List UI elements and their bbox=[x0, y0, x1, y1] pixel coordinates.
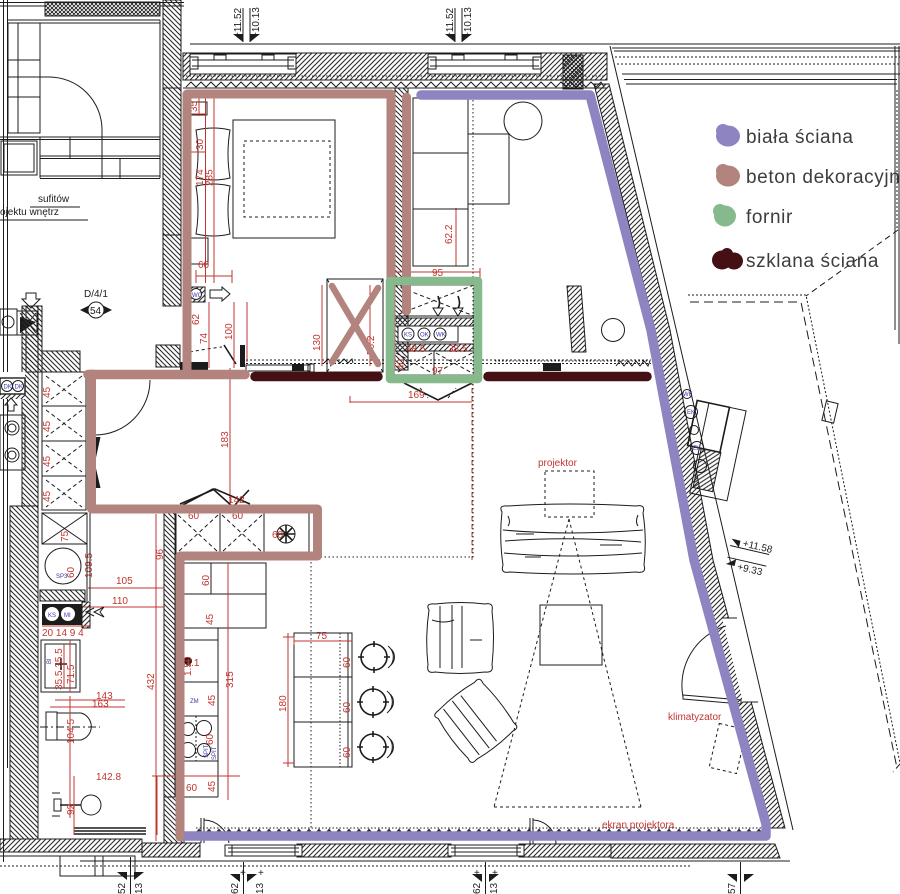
svg-text:WK: WK bbox=[683, 392, 693, 398]
svg-text:+: + bbox=[474, 868, 480, 879]
svg-text:62.2: 62.2 bbox=[444, 224, 455, 244]
svg-text:+: + bbox=[492, 868, 498, 879]
svg-text:+11.52: +11.52 bbox=[445, 7, 456, 38]
svg-text:60: 60 bbox=[342, 701, 353, 713]
svg-text:beton dekoracyjny: beton dekoracyjny bbox=[746, 167, 900, 188]
svg-text:fornir: fornir bbox=[746, 207, 793, 228]
svg-text:105: 105 bbox=[116, 576, 133, 587]
svg-text:57: 57 bbox=[727, 882, 738, 894]
svg-text:EK: EK bbox=[687, 410, 695, 416]
svg-text:45: 45 bbox=[42, 420, 53, 432]
svg-text:60: 60 bbox=[205, 733, 216, 745]
svg-text:60: 60 bbox=[342, 746, 353, 758]
svg-text:74: 74 bbox=[199, 332, 210, 344]
svg-text:110: 110 bbox=[112, 596, 128, 607]
svg-text:92: 92 bbox=[66, 803, 77, 815]
svg-text:biała ściana: biała ściana bbox=[746, 127, 854, 148]
svg-text:52: 52 bbox=[117, 882, 128, 894]
svg-text:ojektu wnętrz: ojektu wnętrz bbox=[0, 207, 59, 218]
svg-text:60: 60 bbox=[342, 656, 353, 668]
svg-text:DK: DK bbox=[4, 385, 12, 391]
svg-text:20 14 9 4: 20 14 9 4 bbox=[42, 628, 84, 639]
svg-text:130: 130 bbox=[312, 334, 323, 351]
svg-text:45: 45 bbox=[207, 694, 218, 706]
svg-text:sufitów: sufitów bbox=[38, 194, 70, 205]
svg-text:45: 45 bbox=[207, 780, 218, 792]
svg-text:+10.13: +10.13 bbox=[251, 7, 262, 38]
svg-text:45: 45 bbox=[42, 386, 53, 398]
svg-text:KS: KS bbox=[48, 613, 56, 619]
svg-text:62: 62 bbox=[230, 882, 241, 894]
svg-text:projektor: projektor bbox=[538, 458, 578, 469]
svg-text:klimatyzator: klimatyzator bbox=[668, 712, 722, 723]
svg-text:13: 13 bbox=[255, 882, 266, 894]
svg-text:WC: WC bbox=[192, 293, 203, 299]
svg-text:169: 169 bbox=[408, 390, 425, 401]
svg-text:142: 142 bbox=[228, 495, 245, 506]
svg-text:35.5 35.5: 35.5 35.5 bbox=[54, 648, 65, 690]
svg-text:75: 75 bbox=[316, 631, 328, 642]
svg-text:48.5: 48.5 bbox=[406, 344, 426, 355]
svg-text:MI: MI bbox=[64, 613, 71, 619]
svg-text:szklana ściana: szklana ściana bbox=[746, 251, 879, 272]
svg-text:38.5: 38.5 bbox=[448, 344, 468, 355]
svg-text:54: 54 bbox=[90, 306, 102, 317]
svg-text:60: 60 bbox=[198, 260, 210, 271]
svg-text:285: 285 bbox=[205, 169, 216, 186]
svg-text:142.8: 142.8 bbox=[96, 772, 121, 783]
svg-text:62: 62 bbox=[191, 313, 202, 325]
svg-text:60: 60 bbox=[66, 566, 77, 578]
svg-text:D/4/1: D/4/1 bbox=[84, 289, 108, 300]
svg-text:13: 13 bbox=[489, 882, 500, 894]
svg-text:+: + bbox=[258, 868, 264, 879]
svg-text:100: 100 bbox=[224, 323, 235, 340]
svg-text:SPIT: SPIT bbox=[212, 746, 218, 760]
svg-text:EK: EK bbox=[693, 446, 701, 452]
svg-text:71.5: 71.5 bbox=[66, 664, 77, 684]
svg-text:SP3: SP3 bbox=[56, 574, 68, 580]
svg-text:163: 163 bbox=[92, 699, 109, 710]
svg-text:183: 183 bbox=[220, 431, 231, 448]
svg-text:45: 45 bbox=[205, 613, 216, 625]
svg-text:104 5: 104 5 bbox=[66, 719, 77, 744]
svg-text:315: 315 bbox=[225, 671, 236, 688]
svg-text:+: + bbox=[240, 868, 246, 879]
svg-text:45: 45 bbox=[42, 490, 53, 502]
svg-text:+11.52: +11.52 bbox=[233, 7, 244, 38]
svg-text:SPIT: SPIT bbox=[204, 744, 210, 758]
svg-text:96: 96 bbox=[155, 548, 166, 560]
svg-text:60: 60 bbox=[186, 783, 198, 794]
svg-text:+10.13: +10.13 bbox=[463, 7, 474, 38]
svg-text:Bl: Bl bbox=[47, 659, 53, 664]
svg-text:60: 60 bbox=[272, 530, 284, 541]
svg-text:62: 62 bbox=[472, 882, 483, 894]
svg-text:30: 30 bbox=[195, 138, 206, 150]
svg-text:180: 180 bbox=[278, 695, 289, 712]
svg-text:ekran projektora: ekran projektora bbox=[602, 820, 675, 831]
svg-text:60: 60 bbox=[201, 574, 212, 586]
svg-text:KS: KS bbox=[404, 333, 412, 339]
svg-text:40: 40 bbox=[396, 358, 407, 370]
svg-text:45: 45 bbox=[42, 455, 53, 467]
svg-text:OK: OK bbox=[420, 333, 429, 339]
svg-text:DK: DK bbox=[15, 385, 23, 391]
svg-text:ZM: ZM bbox=[190, 699, 199, 705]
svg-text:432: 432 bbox=[146, 673, 157, 690]
svg-text:WK: WK bbox=[436, 333, 446, 339]
svg-text:13: 13 bbox=[134, 882, 145, 894]
